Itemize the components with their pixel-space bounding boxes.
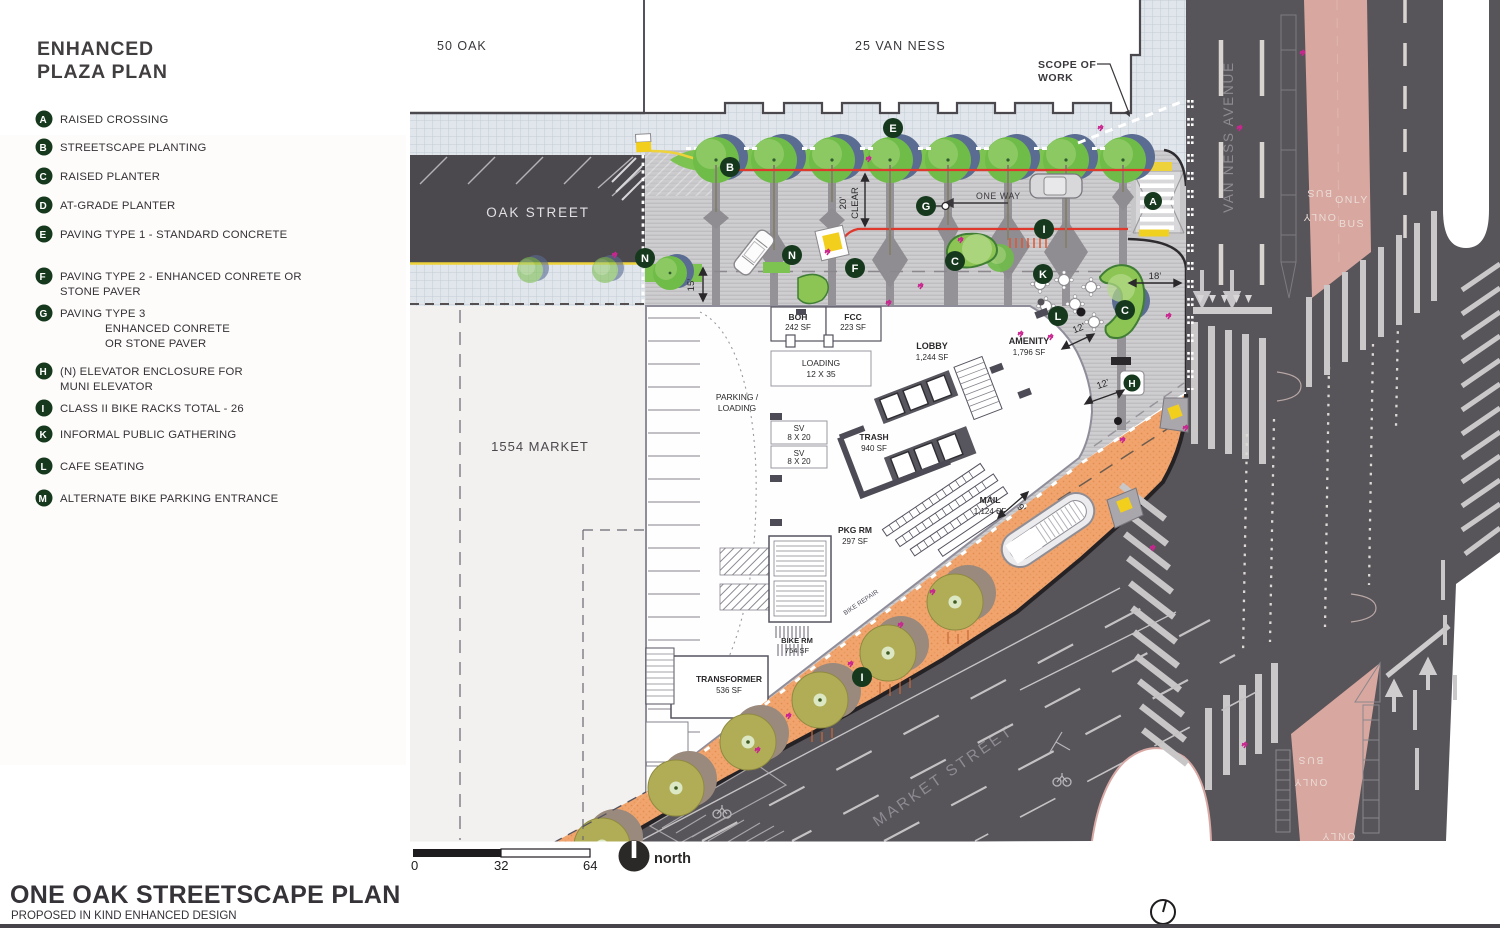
svg-text:223 SF: 223 SF (840, 323, 866, 332)
svg-text:BUS: BUS (1297, 754, 1324, 765)
svg-text:ONLY: ONLY (1321, 830, 1356, 841)
svg-text:LOADING: LOADING (718, 403, 756, 413)
svg-text:B: B (40, 143, 47, 154)
svg-text:1,244 SF: 1,244 SF (916, 353, 949, 362)
svg-text:PAVING TYPE 3: PAVING TYPE 3 (60, 308, 145, 320)
svg-text:MUNI ELEVATOR: MUNI ELEVATOR (60, 381, 153, 393)
svg-text:20’: 20’ (838, 197, 849, 210)
svg-text:754 SF: 754 SF (785, 646, 810, 655)
svg-text:PARKING /: PARKING / (716, 392, 759, 402)
svg-text:H: H (1128, 379, 1135, 390)
svg-text:32: 32 (494, 858, 508, 873)
svg-text:15’: 15’ (686, 279, 697, 292)
svg-text:SV: SV (794, 424, 805, 433)
svg-text:RAISED CROSSING: RAISED CROSSING (60, 114, 168, 126)
svg-text:ONE OAK STREETSCAPE PLAN: ONE OAK STREETSCAPE PLAN (10, 881, 401, 909)
svg-text:8 X 20: 8 X 20 (787, 457, 811, 466)
svg-text:A: A (40, 115, 47, 126)
svg-text:G: G (922, 201, 931, 213)
svg-text:STONE PAVER: STONE PAVER (60, 286, 141, 298)
svg-text:PKG RM: PKG RM (838, 525, 872, 535)
svg-text:ONLY: ONLY (1293, 776, 1328, 787)
svg-text:1,796 SF: 1,796 SF (1013, 348, 1046, 357)
svg-text:F: F (40, 272, 46, 283)
svg-text:ENHANCED CONRETE: ENHANCED CONRETE (105, 323, 230, 335)
svg-text:F: F (852, 263, 859, 275)
svg-text:L: L (1055, 311, 1062, 323)
svg-text:TRASH: TRASH (859, 432, 888, 442)
svg-text:LOADING: LOADING (802, 358, 840, 368)
svg-text:STREETSCAPE PLANTING: STREETSCAPE PLANTING (60, 142, 207, 154)
svg-text:18’: 18’ (1149, 271, 1162, 282)
svg-text:CLEAR: CLEAR (850, 187, 861, 219)
svg-text:CAFE SEATING: CAFE SEATING (60, 461, 144, 473)
svg-text:MAIL: MAIL (980, 495, 1001, 505)
svg-text:C: C (1121, 305, 1129, 317)
svg-text:PROPOSED IN KIND ENHANCED DESI: PROPOSED IN KIND ENHANCED DESIGN (11, 910, 237, 922)
svg-text:N: N (641, 253, 649, 265)
svg-text:I: I (860, 672, 863, 684)
svg-text:C: C (40, 172, 47, 183)
svg-text:50 OAK: 50 OAK (437, 39, 487, 53)
svg-text:ONLY: ONLY (1302, 211, 1336, 223)
svg-text:C: C (951, 256, 959, 268)
svg-text:BUS: BUS (1306, 187, 1332, 199)
svg-text:WORK: WORK (1038, 72, 1073, 84)
svg-text:536 SF: 536 SF (716, 686, 742, 695)
svg-text:OR STONE PAVER: OR STONE PAVER (105, 338, 206, 350)
svg-text:H: H (40, 367, 47, 378)
svg-text:E: E (40, 230, 47, 241)
svg-text:K: K (1039, 269, 1047, 281)
svg-text:64: 64 (583, 858, 597, 873)
svg-text:AT-GRADE PLANTER: AT-GRADE PLANTER (60, 200, 175, 212)
svg-text:297 SF: 297 SF (842, 537, 868, 546)
svg-text:BIKE RM: BIKE RM (781, 636, 813, 645)
svg-text:I: I (42, 404, 45, 415)
svg-text:OAK STREET: OAK STREET (486, 205, 590, 220)
svg-text:TRANSFORMER: TRANSFORMER (696, 674, 762, 684)
svg-text:K: K (40, 430, 48, 441)
svg-text:north: north (654, 851, 691, 867)
svg-text:FCC: FCC (844, 312, 861, 322)
svg-text:BUS: BUS (1339, 218, 1365, 230)
svg-text:ONE WAY: ONE WAY (976, 191, 1021, 201)
svg-text:RAISED PLANTER: RAISED PLANTER (60, 171, 160, 183)
svg-text:LOBBY: LOBBY (916, 341, 948, 351)
svg-text:N: N (788, 250, 796, 262)
svg-text:(N) ELEVATOR ENCLOSURE FOR: (N) ELEVATOR ENCLOSURE FOR (60, 366, 243, 378)
svg-text:940 SF: 940 SF (861, 444, 887, 453)
svg-text:0: 0 (411, 858, 418, 873)
svg-text:A: A (1149, 196, 1157, 208)
svg-text:PLAZA PLAN: PLAZA PLAN (37, 61, 168, 83)
svg-text:8 X 20: 8 X 20 (787, 433, 811, 442)
svg-text:D: D (40, 201, 47, 212)
svg-text:ENHANCED: ENHANCED (37, 38, 154, 60)
svg-text:G: G (40, 309, 48, 320)
svg-text:L: L (41, 462, 47, 473)
svg-text:ALTERNATE BIKE PARKING ENTRANC: ALTERNATE BIKE PARKING ENTRANCE (60, 493, 279, 505)
svg-text:PAVING TYPE 2 - ENHANCED CONRE: PAVING TYPE 2 - ENHANCED CONRETE OR (60, 271, 302, 283)
svg-text:242 SF: 242 SF (785, 323, 811, 332)
svg-text:VAN NESS AVENUE: VAN NESS AVENUE (1221, 61, 1236, 213)
svg-text:12 X 35: 12 X 35 (806, 369, 836, 379)
svg-text:I: I (1042, 224, 1045, 236)
svg-text:ONLY: ONLY (1335, 194, 1369, 206)
svg-text:AMENITY: AMENITY (1009, 336, 1050, 346)
svg-text:M: M (39, 494, 48, 505)
svg-text:1554 MARKET: 1554 MARKET (491, 439, 589, 454)
svg-text:B: B (726, 162, 734, 174)
svg-text:PAVING TYPE 1 - STANDARD CONCR: PAVING TYPE 1 - STANDARD CONCRETE (60, 229, 288, 241)
svg-text:INFORMAL PUBLIC GATHERING: INFORMAL PUBLIC GATHERING (60, 429, 236, 441)
svg-text:SCOPE OF: SCOPE OF (1038, 59, 1096, 71)
svg-text:25 VAN NESS: 25 VAN NESS (855, 39, 946, 53)
svg-text:E: E (889, 123, 896, 135)
svg-text:CLASS II BIKE RACKS TOTAL - 26: CLASS II BIKE RACKS TOTAL - 26 (60, 403, 244, 415)
